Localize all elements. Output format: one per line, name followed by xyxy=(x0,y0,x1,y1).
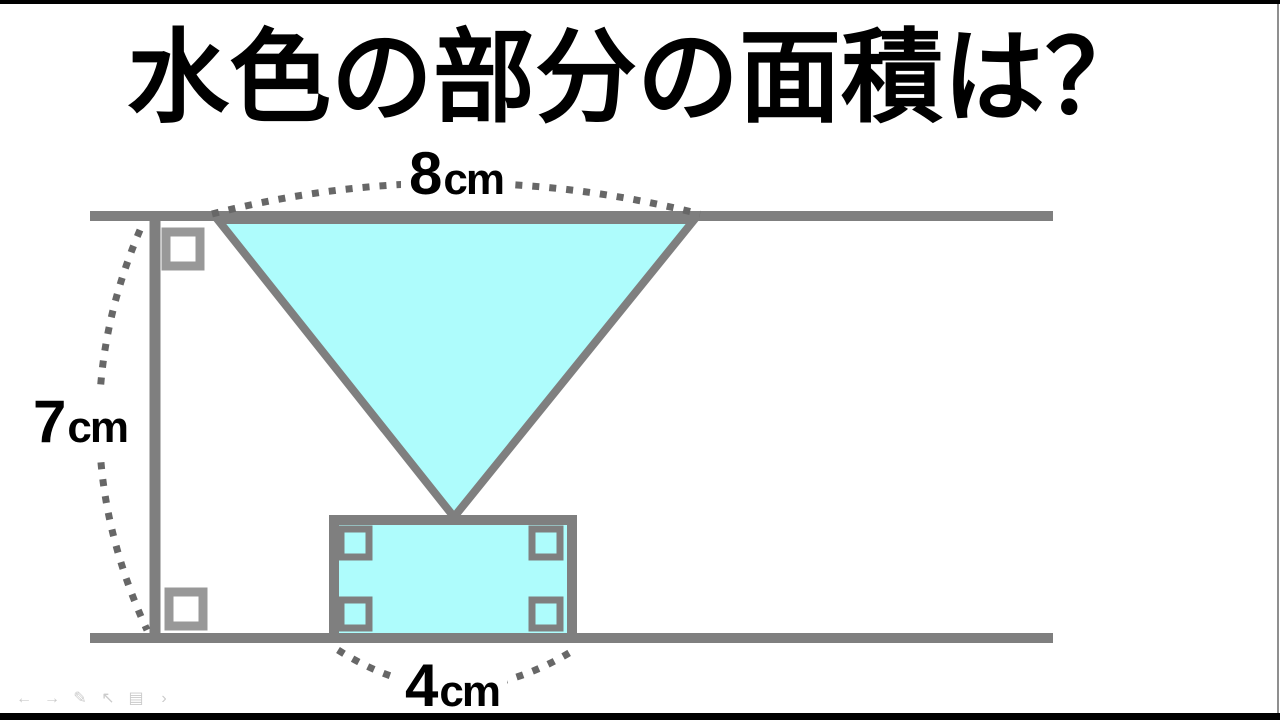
chevron-right-icon[interactable]: › xyxy=(156,691,172,707)
dimension-value: 7 xyxy=(33,392,66,452)
dimension-unit: cm xyxy=(443,158,503,202)
dimension-unit: cm xyxy=(439,670,499,714)
next-slide-icon[interactable]: → xyxy=(44,691,60,707)
right-angle-marker-bottom-left xyxy=(169,592,203,626)
previous-slide-icon[interactable]: ← xyxy=(16,691,32,707)
cyan-triangle xyxy=(218,220,694,517)
page-title: 水色の部分の面積は？ xyxy=(127,20,1147,137)
dimension-label-7cm: 7cm xyxy=(25,390,135,454)
right-angle-marker-top-left xyxy=(166,232,200,266)
dimension-label-8cm: 8cm xyxy=(401,142,511,206)
dimension-unit: cm xyxy=(67,406,127,450)
letterbox-top-bar xyxy=(0,0,1280,4)
presenter-toolbar: ← → ✎ ↖ ▤ › xyxy=(16,691,172,707)
dimension-value: 8 xyxy=(409,144,442,204)
pen-icon[interactable]: ✎ xyxy=(72,691,88,707)
slide-overview-icon[interactable]: ▤ xyxy=(128,691,144,707)
dimension-value: 4 xyxy=(405,656,438,716)
letterbox-bottom-bar xyxy=(0,713,1280,720)
cursor-icon[interactable]: ↖ xyxy=(100,691,116,707)
slide-right-edge xyxy=(1277,4,1279,713)
dimension-label-4cm: 4cm xyxy=(397,654,507,718)
